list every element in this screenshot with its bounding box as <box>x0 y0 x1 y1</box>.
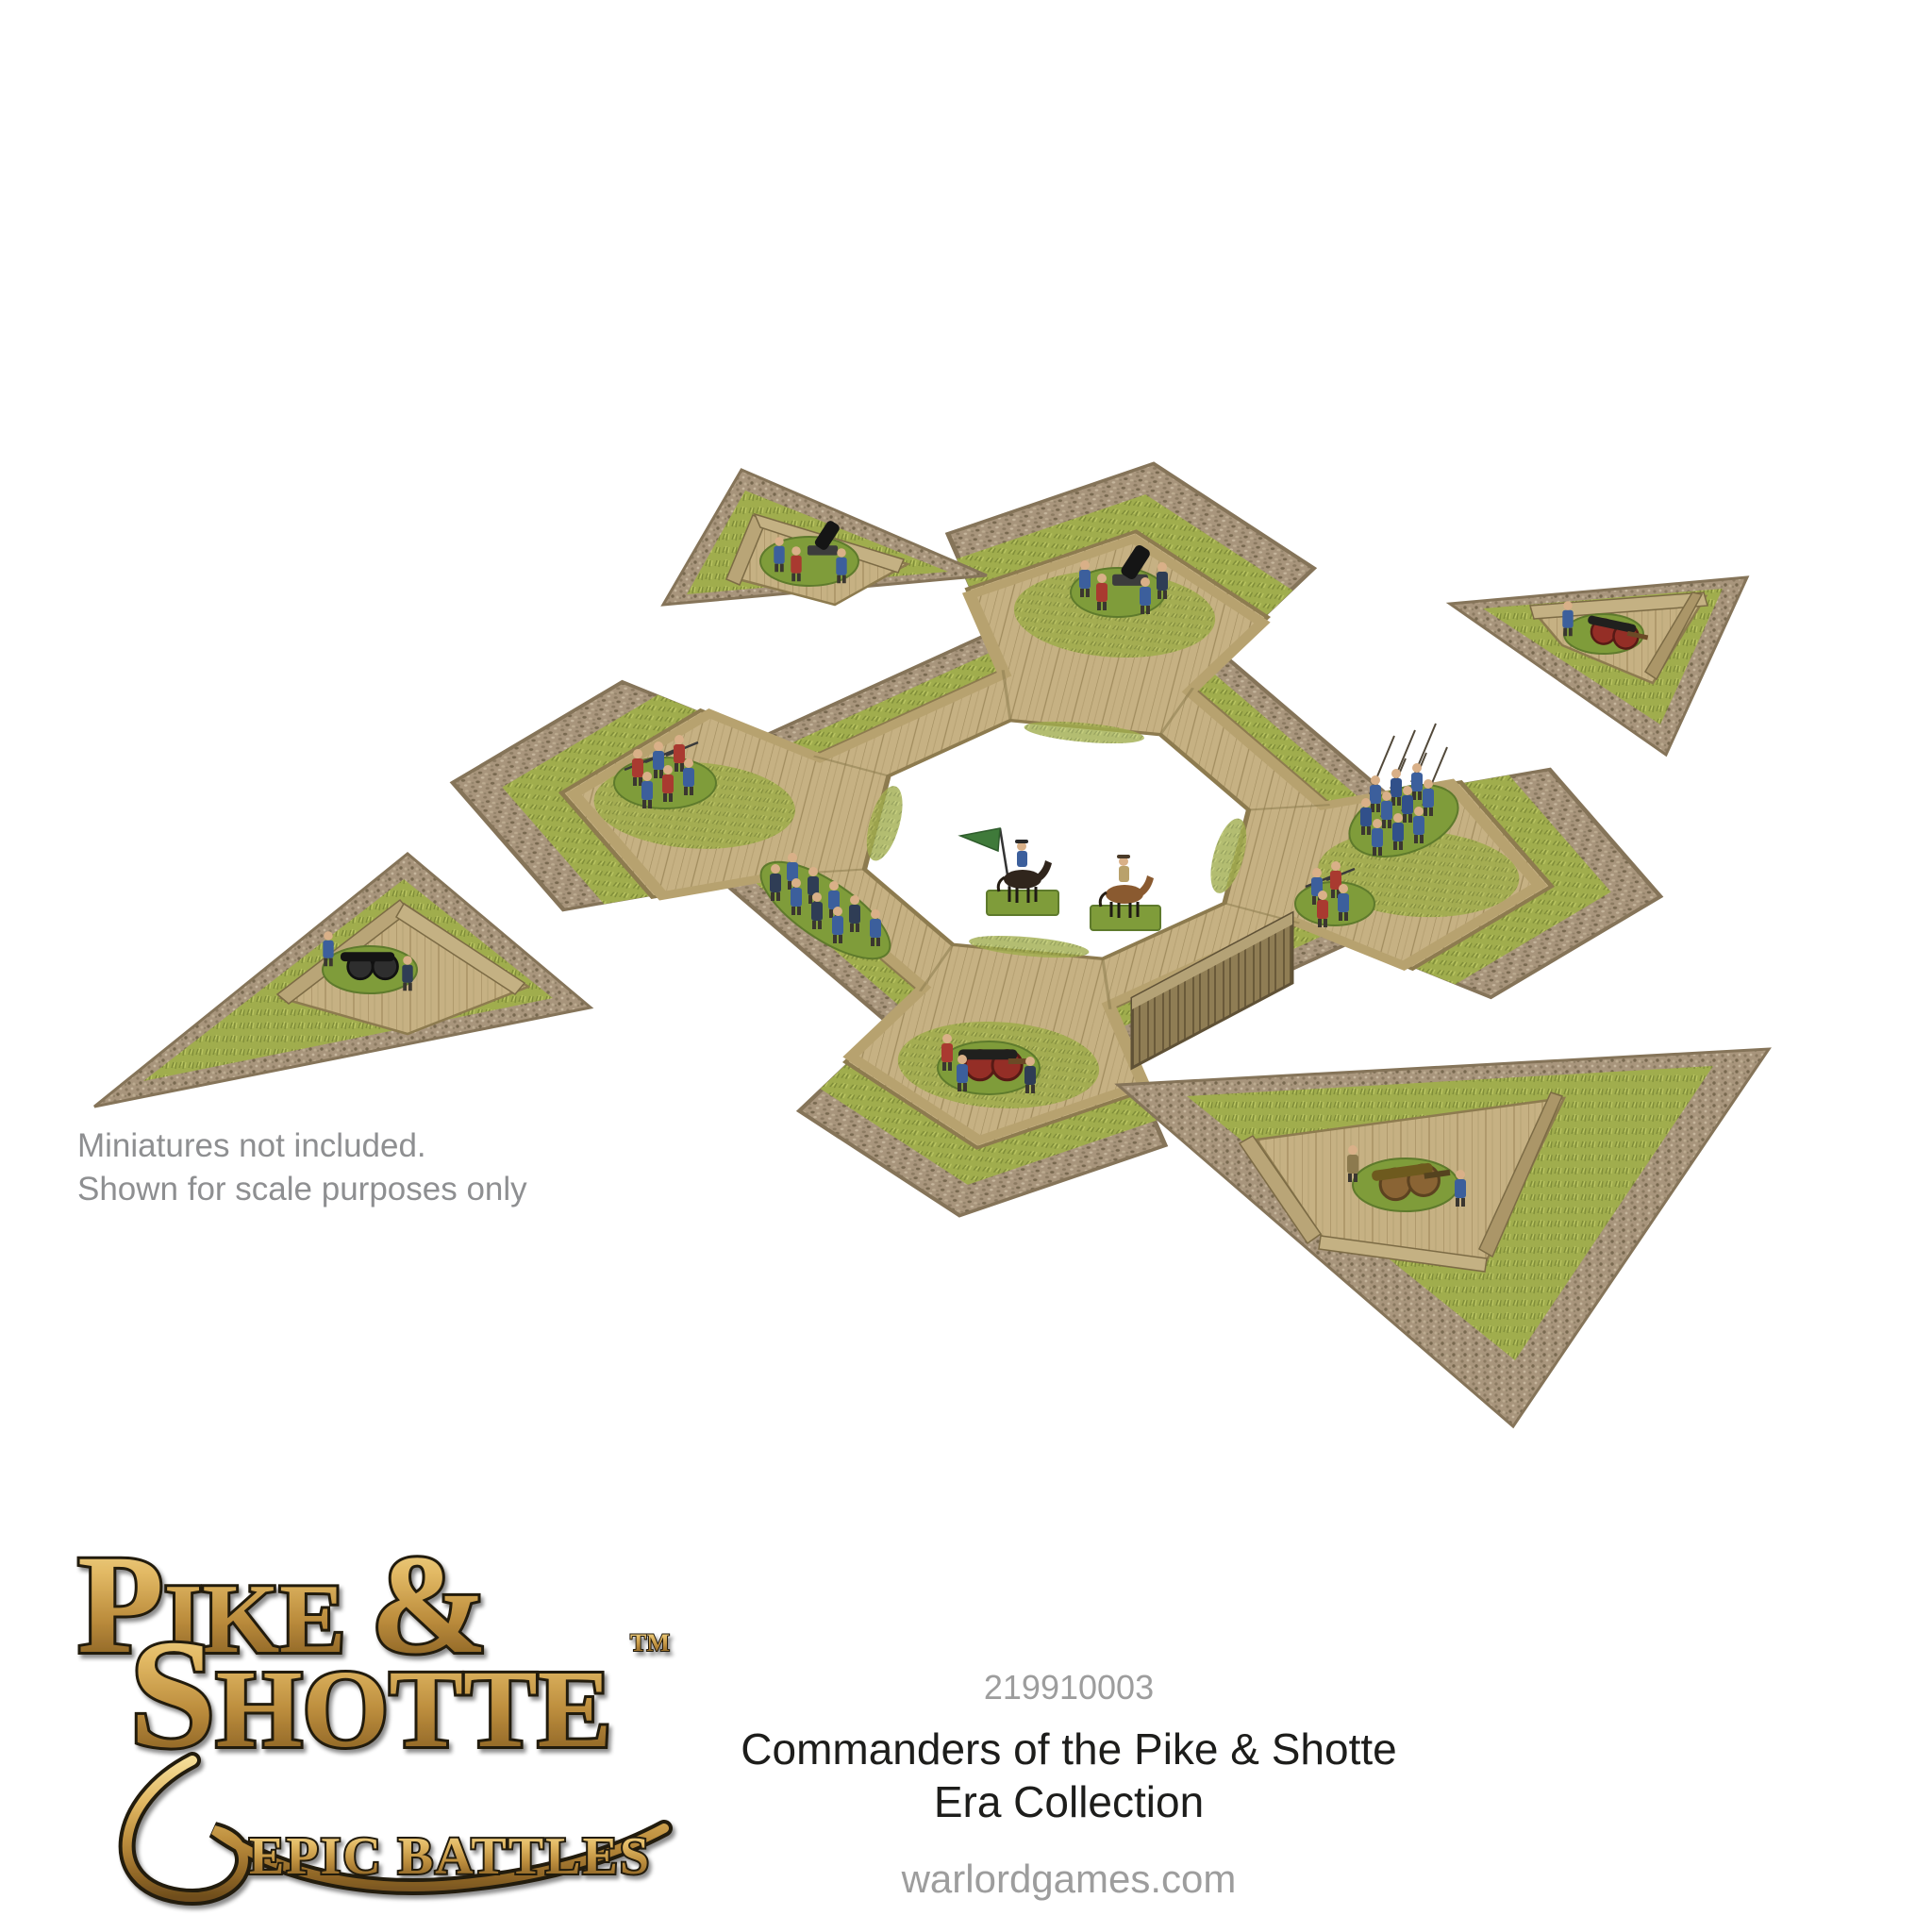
product-code: 219910003 <box>741 1668 1396 1707</box>
ravelin-upper-left <box>663 470 987 605</box>
product-title-line2: Era Collection <box>741 1775 1396 1828</box>
note-line1: Miniatures not included. <box>77 1124 527 1168</box>
logo-trademark: TM <box>630 1629 670 1657</box>
ravelin-lower-right <box>1118 1049 1769 1426</box>
logo-line2-initial: S <box>129 1607 216 1780</box>
logo-subtitle: EPIC BATTLES <box>249 1827 651 1886</box>
product-title-line1: Commanders of the Pike & Shotte <box>741 1723 1396 1775</box>
website-url: warlordgames.com <box>741 1857 1396 1902</box>
note-line2: Shown for scale purposes only <box>77 1168 527 1211</box>
logo-line2-rest: HOTTE <box>216 1647 612 1771</box>
miniatures-note: Miniatures not included. Shown for scale… <box>77 1124 527 1211</box>
pike-and-shotte-logo: PIKE & SHOTTE TM EPIC BATTLES <box>49 1517 687 1932</box>
product-image-page: Miniatures not included. Shown for scale… <box>0 0 1932 1932</box>
ravelin-upper-right <box>1450 577 1747 755</box>
product-caption: 219910003 Commanders of the Pike & Shott… <box>741 1668 1396 1902</box>
ravelin-left <box>94 854 591 1107</box>
